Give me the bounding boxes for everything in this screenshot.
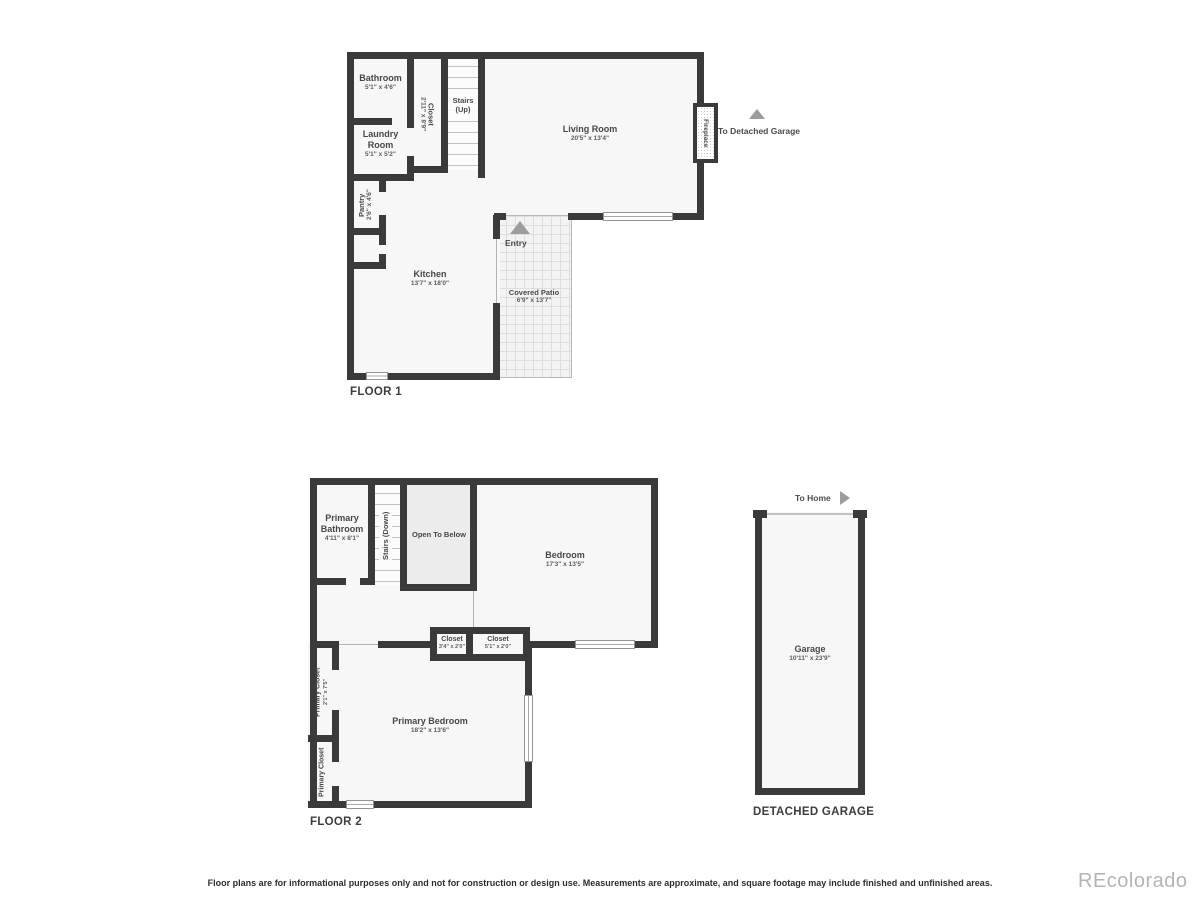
- closet-name: Closet: [426, 103, 435, 126]
- fireplace-box: Fireplace: [693, 103, 718, 163]
- window: [346, 800, 374, 809]
- room-label-primary-bedroom: Primary Bedroom 18'2" x 13'6": [370, 712, 490, 738]
- primary-closet-a-name: Primary Closet: [315, 667, 323, 716]
- room-label-closet-a: Closet 3'4" x 2'0": [436, 632, 468, 654]
- garage-door-line: [762, 513, 858, 515]
- wall-segment: [753, 510, 767, 518]
- primary-bathroom-name: Primary Bathroom: [319, 513, 365, 535]
- window: [366, 372, 388, 380]
- watermark-recolorado: REcolorado: [1078, 870, 1188, 893]
- wall-segment: [853, 510, 867, 518]
- garage-dims: 10'11" x 23'9": [789, 655, 830, 663]
- wall-segment: [525, 760, 532, 808]
- wall-segment: [493, 303, 500, 380]
- to-home-label: To Home: [795, 493, 831, 503]
- floor1-title: FLOOR 1: [350, 386, 402, 398]
- room-label-primary-bathroom: Primary Bathroom 4'11" x 8'1": [314, 505, 370, 551]
- primary-closet-a-dims: 2'1" x 7'5": [323, 679, 330, 705]
- to-garage-arrow-icon: [749, 109, 765, 119]
- garage-name: Garage: [794, 644, 825, 655]
- room-label-pantry: Pantry 2'6" x 4'6": [352, 182, 379, 228]
- disclaimer-text: Floor plans are for informational purpos…: [0, 878, 1200, 888]
- room-label-stairs-down: Stairs (Down): [371, 490, 400, 582]
- room-label-closet-b: Closet 5'1" x 2'0": [474, 632, 522, 654]
- laundry-dims: 5'1" x 5'2": [365, 151, 396, 159]
- room-label-garage: Garage 10'11" x 23'9": [775, 640, 845, 666]
- covered-patio-dims: 6'9" x 13'7": [517, 297, 552, 305]
- bathroom-dims: 5'1" x 4'6": [365, 84, 396, 92]
- wall-segment: [332, 710, 339, 742]
- living-room-name: Living Room: [563, 124, 618, 135]
- entry-arrow-icon: [510, 221, 530, 234]
- floor2-title: FLOOR 2: [310, 816, 362, 828]
- wall-segment: [332, 742, 339, 762]
- primary-bathroom-dims: 4'11" x 8'1": [325, 535, 359, 543]
- pantry-name: Pantry: [357, 193, 366, 216]
- wall-segment: [528, 641, 577, 648]
- pantry-dims: 2'6" x 4'6": [366, 190, 374, 221]
- room-label-stairs-up: Stairs (Up): [442, 90, 484, 120]
- primary-bedroom-name: Primary Bedroom: [392, 716, 468, 727]
- wall-segment: [308, 801, 532, 808]
- wall-segment: [379, 235, 386, 245]
- covered-patio-name: Covered Patio: [509, 288, 559, 297]
- primary-bedroom-dims: 18'2" x 13'6": [411, 727, 449, 735]
- wall-segment: [347, 52, 704, 59]
- room-label-laundry: Laundry Room 5'1" x 5'2": [352, 124, 409, 164]
- entry-label: Entry: [505, 238, 527, 248]
- closet-a-name: Closet: [441, 636, 462, 644]
- wall-segment: [430, 654, 530, 661]
- open-to-below-name: Open To Below: [412, 530, 466, 539]
- room-label-covered-patio: Covered Patio 6'9" x 13'7": [492, 284, 576, 308]
- to-garage-label: To Detached Garage: [718, 126, 800, 136]
- bedroom-dims: 17'3" x 13'5": [546, 561, 584, 569]
- kitchen-dims: 13'7" x 18'0": [411, 280, 449, 288]
- closet-b-dims: 5'1" x 2'0": [485, 644, 511, 651]
- fireplace-label: Fireplace: [702, 119, 709, 148]
- wall-segment: [332, 648, 339, 670]
- room-label-open-to-below: Open To Below: [405, 524, 473, 544]
- wall-segment: [332, 786, 339, 808]
- room-label-primary-closet-b: Primary Closet: [311, 744, 333, 800]
- wall-segment: [400, 584, 477, 591]
- to-home-arrow-icon: [840, 491, 850, 505]
- room-label-bathroom: Bathroom 5'1" x 4'6": [352, 68, 409, 96]
- wall-segment: [755, 512, 762, 795]
- bathroom-name: Bathroom: [359, 73, 402, 84]
- wall-segment: [525, 643, 532, 697]
- bedroom-name: Bedroom: [545, 550, 585, 561]
- wall-segment: [493, 215, 500, 239]
- room-label-kitchen: Kitchen 13'7" x 18'0": [380, 265, 480, 291]
- wall-segment: [378, 641, 432, 648]
- room-label-closet: Closet 2'11" x 8'9": [413, 62, 441, 166]
- closet-dims: 2'11" x 8'9": [419, 97, 427, 131]
- hallway-opening: [339, 641, 378, 648]
- stairs-down-name: Stairs (Down): [379, 511, 392, 561]
- room-label-primary-closet-a: Primary Closet 2'1" x 7'5": [311, 650, 333, 734]
- detached-garage-title: DETACHED GARAGE: [753, 806, 874, 818]
- living-room-dims: 20'5" x 13'4": [571, 135, 609, 143]
- wall-segment: [651, 478, 658, 648]
- wall-segment: [310, 478, 658, 485]
- room-label-bedroom: Bedroom 17'3" x 13'5": [500, 546, 630, 572]
- window: [575, 640, 635, 649]
- laundry-name: Laundry Room: [361, 129, 401, 151]
- wall-segment: [858, 512, 865, 795]
- wall-segment: [755, 788, 865, 795]
- window: [524, 695, 533, 762]
- primary-closet-b-name: Primary Closet: [317, 747, 326, 796]
- kitchen-name: Kitchen: [413, 269, 446, 280]
- wall-segment: [379, 176, 386, 192]
- bedroom-doorway: [470, 591, 477, 627]
- closet-b-name: Closet: [487, 636, 508, 644]
- room-label-living-room: Living Room 20'5" x 13'4": [520, 120, 660, 146]
- closet-a-dims: 3'4" x 2'0": [439, 644, 465, 651]
- floor-plan-page: Fireplace Bathroom 5'1" x 4'6" Closet 2'…: [0, 0, 1200, 900]
- window: [603, 212, 673, 221]
- stairs-up-name: Stairs (Up): [448, 95, 478, 115]
- wall-segment: [379, 215, 386, 235]
